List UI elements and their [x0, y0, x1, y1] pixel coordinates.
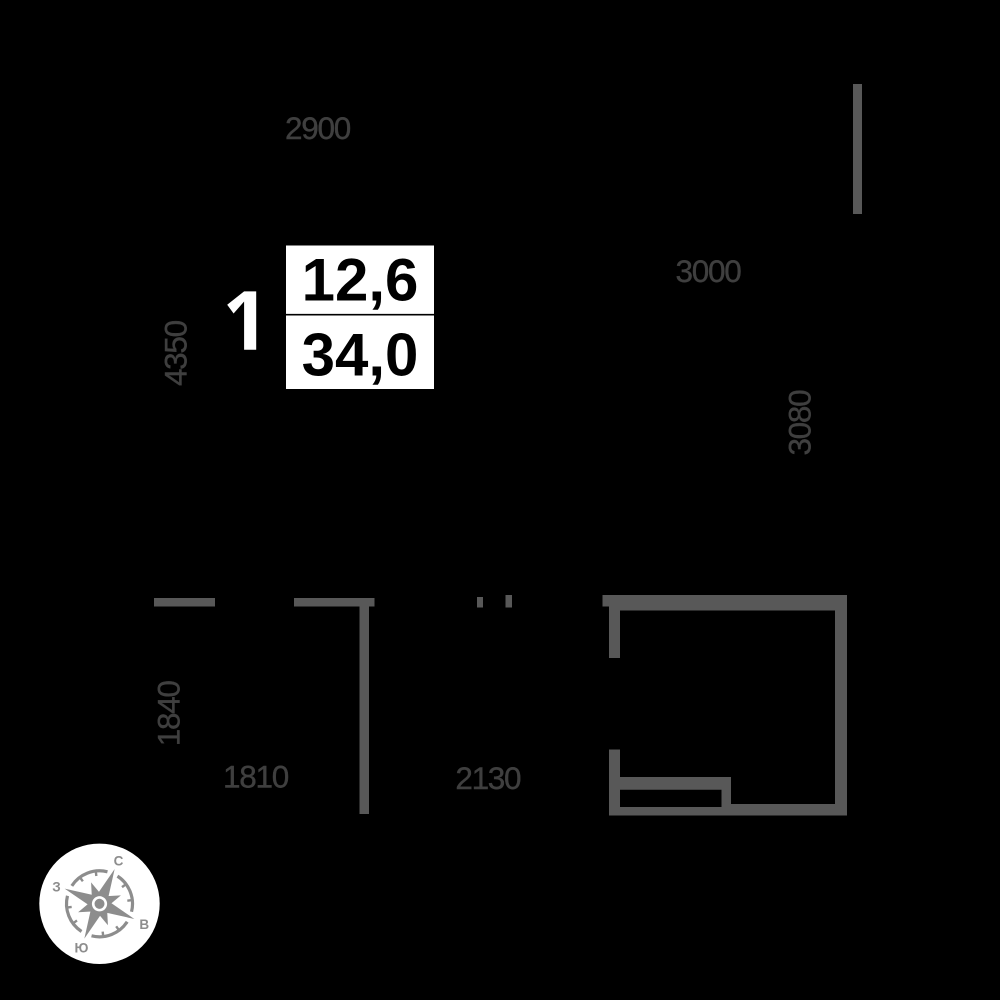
svg-text:1810: 1810	[223, 758, 289, 794]
svg-text:4350: 4350	[157, 320, 193, 386]
svg-text:В: В	[139, 917, 149, 932]
svg-text:3000: 3000	[676, 253, 742, 289]
svg-text:3080: 3080	[781, 390, 817, 456]
svg-text:2130: 2130	[455, 760, 521, 796]
svg-text:2900: 2900	[285, 110, 351, 146]
svg-text:З: З	[52, 879, 60, 894]
svg-text:С: С	[114, 854, 124, 869]
svg-text:34,0: 34,0	[302, 321, 419, 388]
svg-text:1840: 1840	[151, 681, 187, 747]
svg-text:12,6: 12,6	[302, 247, 419, 314]
svg-text:Ю: Ю	[75, 941, 89, 956]
